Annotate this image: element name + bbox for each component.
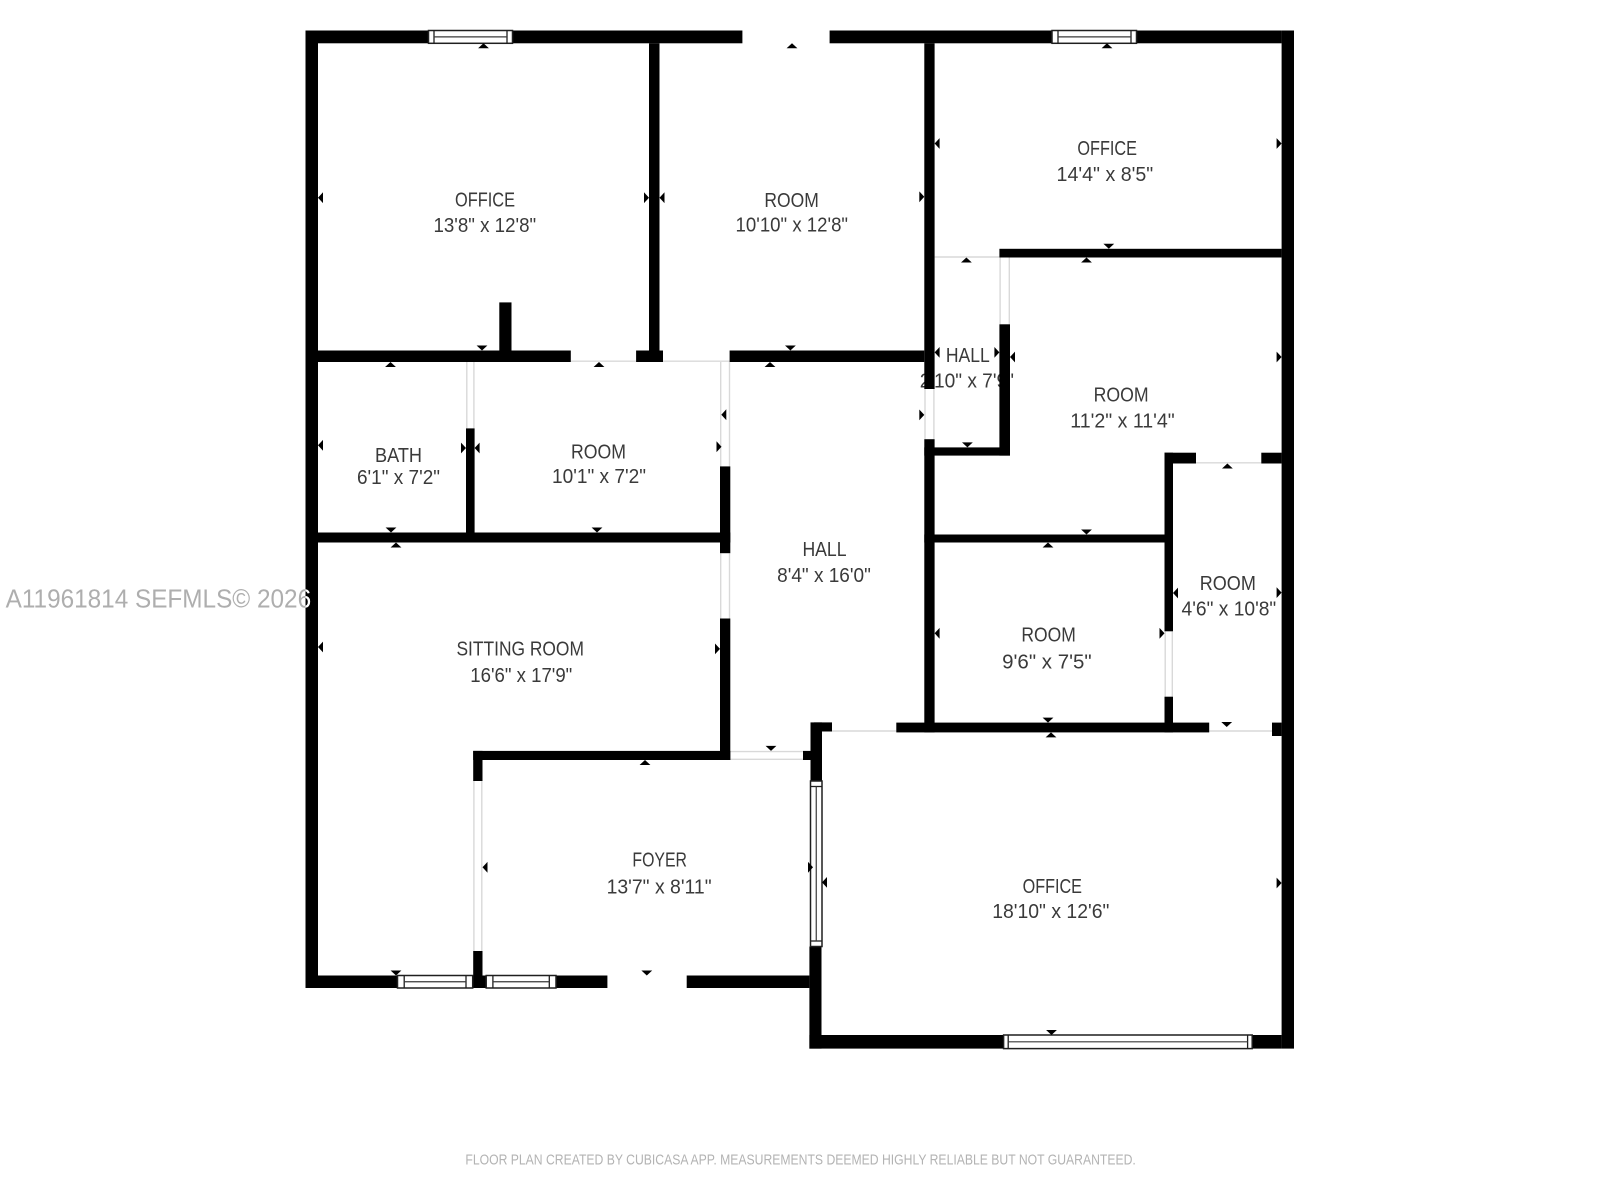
svg-text:10'1" x 7'2": 10'1" x 7'2" xyxy=(552,465,646,488)
svg-text:OFFICE: OFFICE xyxy=(455,189,515,212)
svg-text:FOYER: FOYER xyxy=(632,849,687,872)
svg-text:4'6" x 10'8": 4'6" x 10'8" xyxy=(1182,598,1277,621)
svg-text:13'7" x 8'11": 13'7" x 8'11" xyxy=(607,875,712,898)
svg-text:A11961814 SEFMLS© 2026: A11961814 SEFMLS© 2026 xyxy=(6,584,312,614)
svg-text:18'10" x 12'6": 18'10" x 12'6" xyxy=(992,900,1109,923)
svg-text:13'8" x 12'8": 13'8" x 12'8" xyxy=(433,214,536,237)
svg-text:10'10" x 12'8": 10'10" x 12'8" xyxy=(736,213,849,236)
svg-text:HALL: HALL xyxy=(802,538,846,561)
svg-text:BATH: BATH xyxy=(375,444,422,467)
svg-text:ROOM: ROOM xyxy=(571,441,626,464)
svg-text:11'2" x 11'4": 11'2" x 11'4" xyxy=(1070,410,1175,433)
svg-text:OFFICE: OFFICE xyxy=(1023,875,1082,898)
svg-text:HALL: HALL xyxy=(946,344,990,367)
svg-text:ROOM: ROOM xyxy=(764,189,818,212)
svg-text:OFFICE: OFFICE xyxy=(1077,137,1137,160)
svg-text:9'6" x 7'5": 9'6" x 7'5" xyxy=(1002,650,1092,673)
svg-text:ROOM: ROOM xyxy=(1200,572,1256,595)
svg-text:16'6" x 17'9": 16'6" x 17'9" xyxy=(470,664,572,687)
svg-text:8'4" x 16'0": 8'4" x 16'0" xyxy=(777,564,871,587)
svg-text:ROOM: ROOM xyxy=(1021,624,1075,647)
svg-text:SITTING ROOM: SITTING ROOM xyxy=(456,638,584,661)
svg-text:6'1" x 7'2": 6'1" x 7'2" xyxy=(357,466,440,489)
svg-text:FLOOR PLAN CREATED BY CUBICASA: FLOOR PLAN CREATED BY CUBICASA APP. MEAS… xyxy=(465,1152,1135,1169)
svg-text:ROOM: ROOM xyxy=(1094,384,1149,407)
svg-text:14'4" x 8'5": 14'4" x 8'5" xyxy=(1057,163,1154,186)
